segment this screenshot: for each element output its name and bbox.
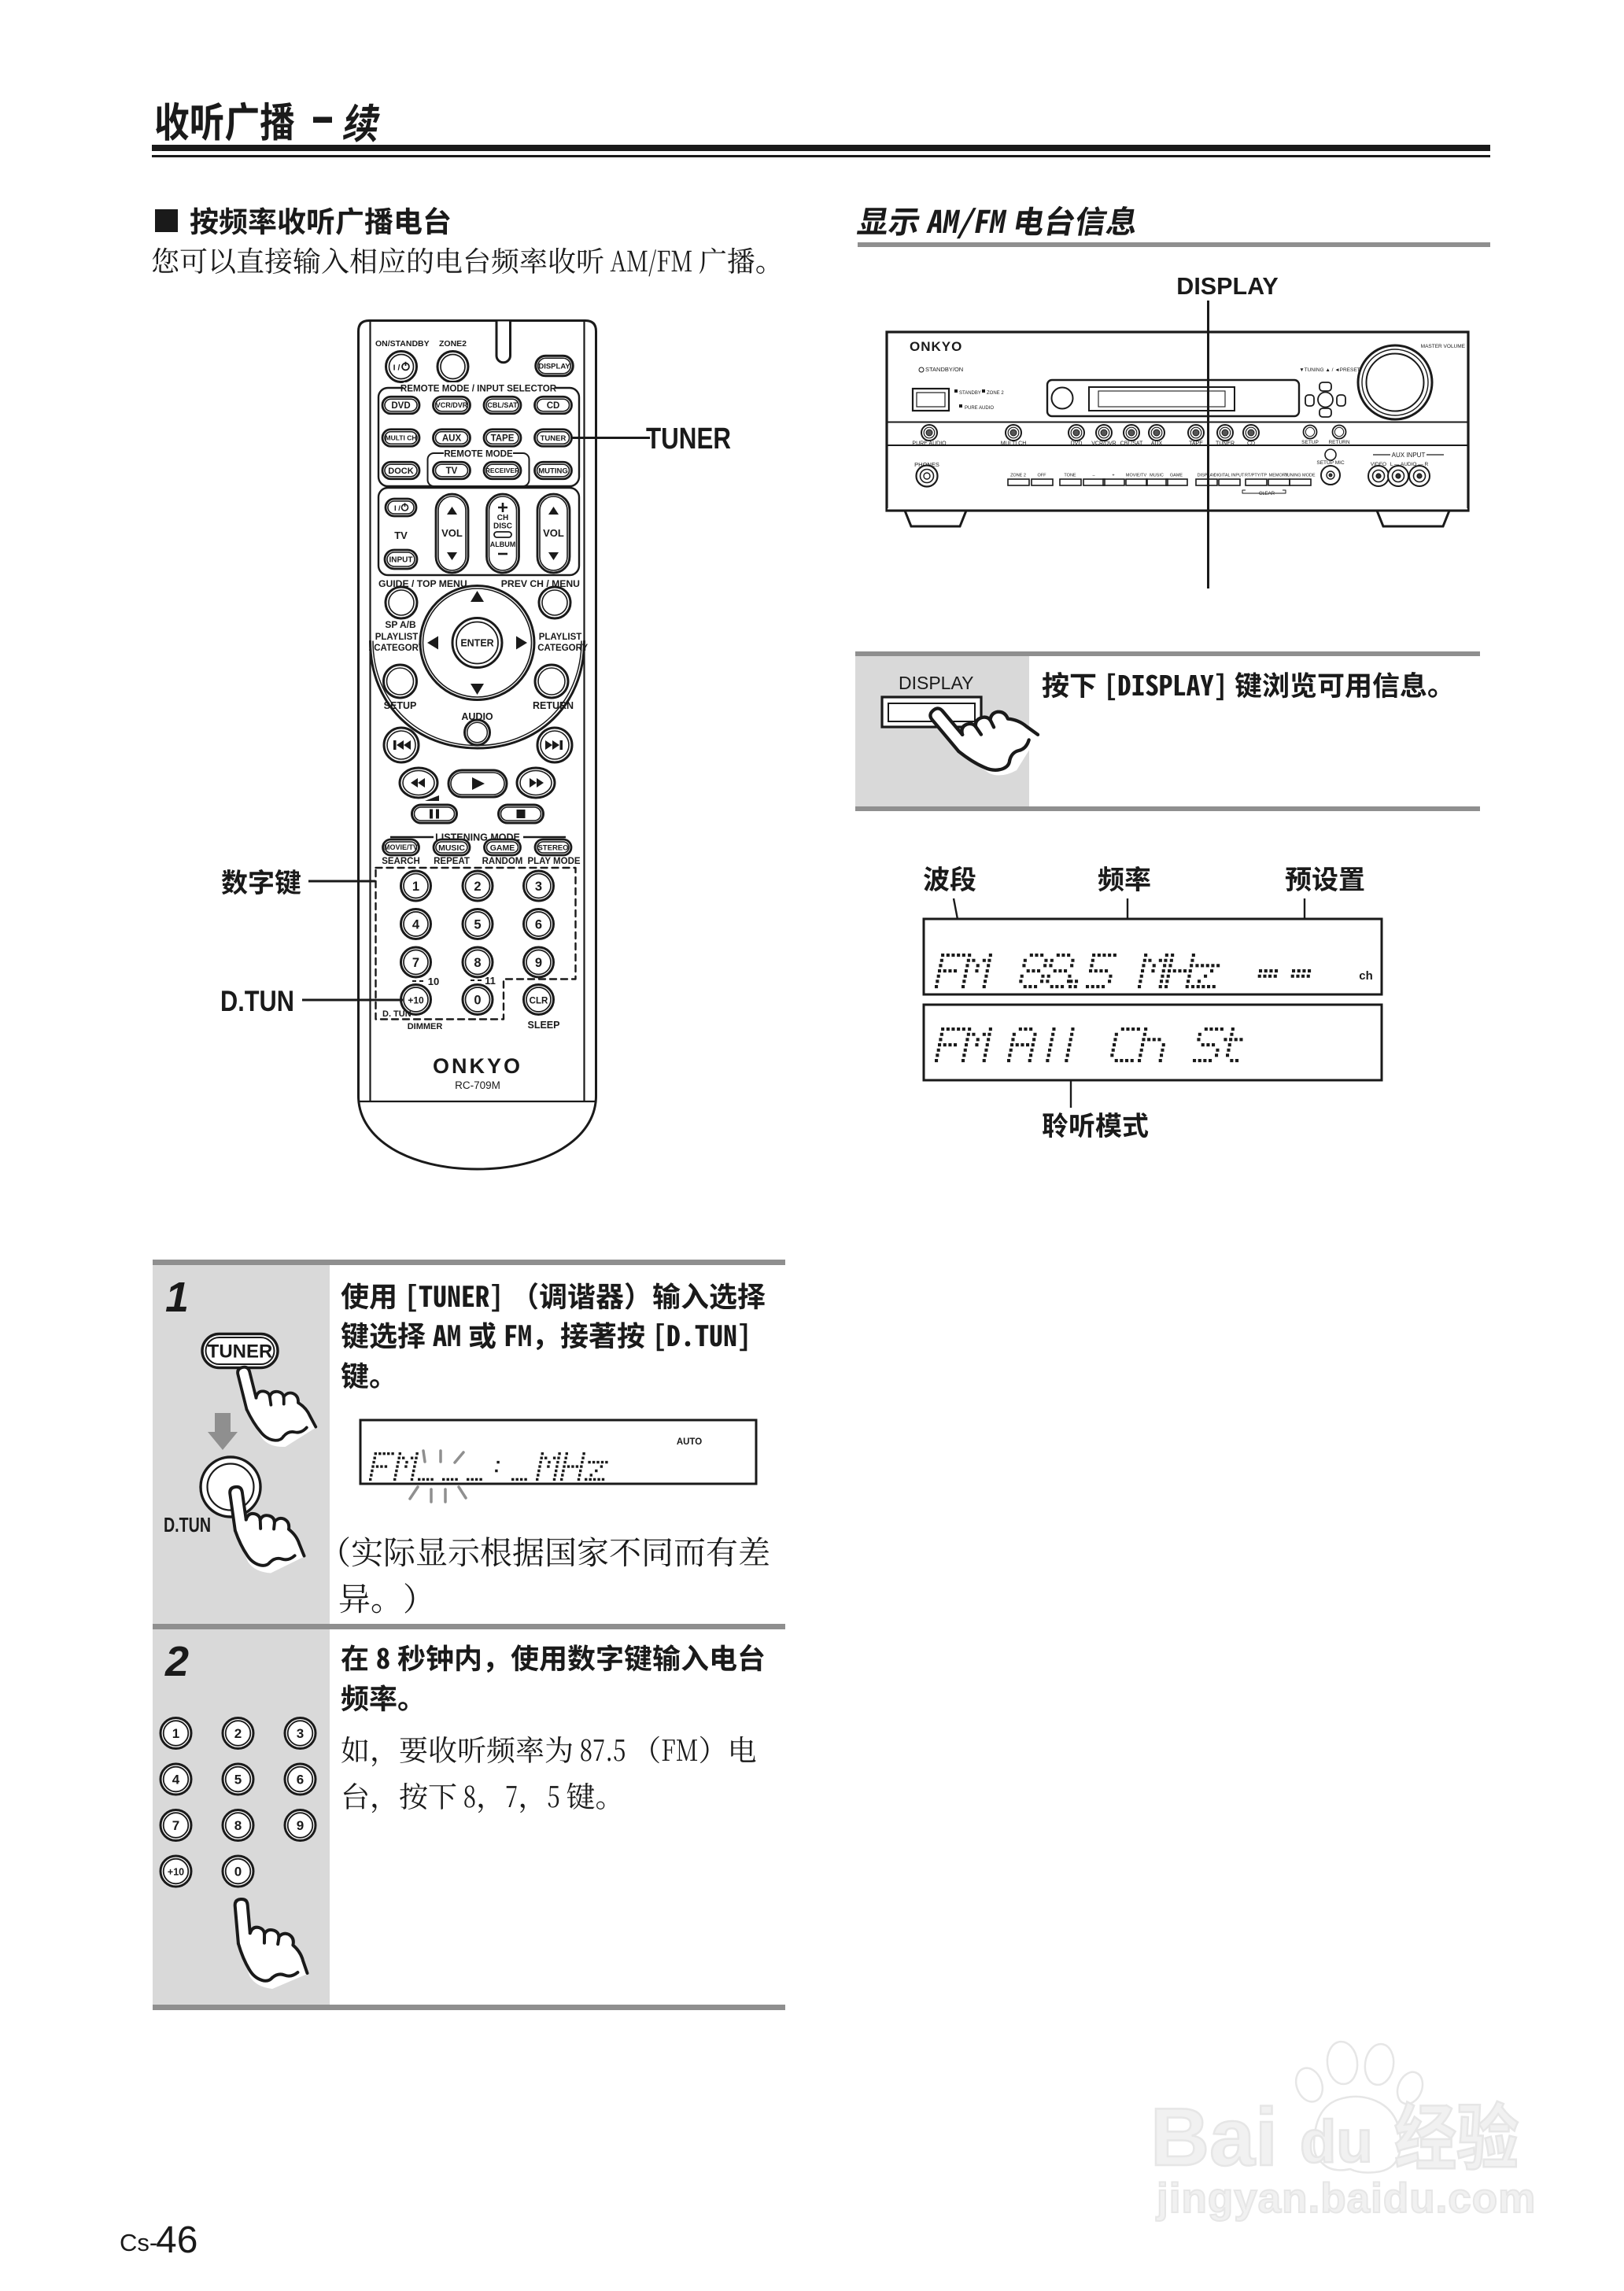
svg-text:DOCK: DOCK	[388, 467, 413, 476]
svg-text:Cs-: Cs-	[120, 2229, 157, 2256]
svg-text:SETUP: SETUP	[1301, 440, 1319, 445]
svg-text:SLEEP: SLEEP	[528, 1020, 560, 1031]
svg-text:AUX: AUX	[442, 434, 462, 444]
svg-text:46: 46	[156, 2219, 197, 2261]
svg-text:du: du	[1300, 2108, 1373, 2175]
svg-text:TUNER: TUNER	[1216, 441, 1235, 447]
svg-text:TUNER: TUNER	[541, 434, 567, 443]
svg-text:1: 1	[412, 880, 419, 894]
svg-text:SETUP MIC: SETUP MIC	[1316, 460, 1345, 466]
svg-text:2: 2	[474, 880, 481, 894]
svg-text:6: 6	[535, 918, 542, 932]
svg-text:TAPE: TAPE	[491, 434, 515, 444]
svg-text:DISC: DISC	[493, 522, 512, 531]
svg-text:VCR/DVR: VCR/DVR	[436, 401, 468, 409]
svg-text:▼TUNING ▲ / ◄PRESET ►: ▼TUNING ▲ / ◄PRESET ►	[1299, 367, 1367, 373]
svg-text:DISPLAY: DISPLAY	[1198, 474, 1216, 478]
svg-text:REPEAT: REPEAT	[434, 857, 470, 866]
svg-text:8: 8	[474, 956, 481, 970]
svg-text:PLAYLIST: PLAYLIST	[375, 633, 419, 642]
svg-text:SP A/B: SP A/B	[385, 619, 416, 630]
svg-text:REMOTE MODE / INPUT SELECTOR: REMOTE MODE / INPUT SELECTOR	[400, 384, 557, 394]
svg-text:MULTI CH: MULTI CH	[1001, 441, 1027, 447]
svg-text:1: 1	[172, 1726, 179, 1741]
svg-text:0: 0	[474, 994, 481, 1008]
svg-text:PLAY MODE: PLAY MODE	[527, 857, 580, 866]
svg-text:GAME: GAME	[490, 843, 515, 853]
svg-text:+10: +10	[168, 1867, 184, 1878]
svg-text:DVD: DVD	[1071, 441, 1083, 447]
svg-text:+: +	[1112, 474, 1114, 478]
svg-text:CD: CD	[547, 401, 560, 411]
svg-text:DVD: DVD	[391, 401, 410, 411]
svg-text:MASTER VOLUME: MASTER VOLUME	[1421, 344, 1466, 349]
svg-text:VOL: VOL	[441, 527, 463, 539]
svg-text:ZONE2: ZONE2	[439, 339, 467, 349]
svg-text:TONE: TONE	[1064, 474, 1076, 478]
svg-text:STANDBY: STANDBY	[959, 391, 981, 396]
svg-text:8: 8	[234, 1818, 242, 1833]
svg-text:I /: I /	[393, 363, 400, 373]
svg-text:AUX: AUX	[1151, 441, 1163, 447]
svg-text:7: 7	[412, 956, 419, 970]
svg-text:INPUT: INPUT	[389, 556, 413, 565]
svg-text:STANDBY/ON: STANDBY/ON	[925, 366, 963, 373]
svg-text:TAPE: TAPE	[1189, 441, 1203, 447]
svg-text:TUNING MODE: TUNING MODE	[1284, 474, 1315, 478]
svg-text:MULTI CH: MULTI CH	[386, 434, 417, 442]
svg-text:0: 0	[234, 1865, 242, 1880]
svg-text:ZONE 2: ZONE 2	[1010, 474, 1026, 478]
svg-text:VOL: VOL	[543, 527, 564, 539]
svg-text:CLEAR: CLEAR	[1259, 492, 1275, 496]
svg-text:Bai: Bai	[1150, 2092, 1278, 2183]
svg-text:CH: CH	[497, 514, 508, 522]
svg-text:2: 2	[234, 1726, 242, 1741]
svg-text:MUSIC: MUSIC	[1150, 474, 1164, 478]
svg-text:RT/PTY/TP: RT/PTY/TP	[1245, 474, 1267, 478]
svg-text:ONKYO: ONKYO	[433, 1054, 522, 1078]
svg-text:ch: ch	[1359, 969, 1373, 983]
svg-text:TV: TV	[446, 467, 458, 476]
svg-text:MOVIE/TV: MOVIE/TV	[384, 843, 418, 851]
svg-text:CBL/SAT: CBL/SAT	[1120, 441, 1143, 447]
svg-text:D.TUN: D.TUN	[164, 1513, 211, 1537]
svg-text:GAME: GAME	[1170, 474, 1183, 478]
svg-text:CBL/SAT: CBL/SAT	[487, 401, 518, 409]
svg-text:DIMMER: DIMMER	[408, 1022, 443, 1031]
svg-text:DISPLAY: DISPLAY	[538, 363, 570, 371]
svg-text:jingyan.baidu.com: jingyan.baidu.com	[1156, 2175, 1536, 2222]
svg-text:DISPLAY: DISPLAY	[1176, 273, 1278, 300]
svg-text:CLR: CLR	[530, 997, 548, 1006]
svg-text:PREV CH / MENU: PREV CH / MENU	[501, 578, 580, 589]
svg-text:RANDOM: RANDOM	[482, 857, 523, 866]
svg-text:4: 4	[172, 1773, 180, 1787]
svg-text:6: 6	[297, 1773, 304, 1787]
svg-text:9: 9	[297, 1818, 304, 1833]
svg-text:5: 5	[474, 918, 481, 932]
svg-text:ALBUM: ALBUM	[490, 540, 516, 548]
svg-text:MUSIC: MUSIC	[438, 843, 465, 853]
svg-text:SEARCH: SEARCH	[382, 857, 420, 866]
svg-text:CD: CD	[1247, 441, 1255, 447]
svg-text:10: 10	[428, 976, 439, 987]
svg-text:PURE AUDIO: PURE AUDIO	[912, 441, 947, 447]
svg-text:GUIDE / TOP MENU: GUIDE / TOP MENU	[378, 578, 467, 589]
svg-text:RC-709M: RC-709M	[455, 1079, 500, 1091]
svg-text:D.TUN: D.TUN	[220, 985, 294, 1017]
svg-text:2: 2	[164, 1638, 189, 1685]
svg-text:5: 5	[234, 1773, 242, 1787]
svg-text:STEREO: STEREO	[537, 843, 568, 852]
svg-text:/ CATEGORY: / CATEGORY	[533, 644, 589, 653]
svg-text:MUTING: MUTING	[538, 467, 567, 475]
svg-text:AUX INPUT: AUX INPUT	[1392, 452, 1426, 459]
svg-text:4: 4	[412, 918, 420, 932]
svg-text:AUTO: AUTO	[677, 1437, 702, 1447]
svg-text:ON/STANDBY: ON/STANDBY	[375, 339, 430, 349]
svg-text:ONKYO: ONKYO	[910, 339, 962, 354]
svg-text:+10: +10	[408, 995, 424, 1006]
svg-text:DISPLAY: DISPLAY	[899, 673, 973, 693]
svg-text:3: 3	[297, 1726, 304, 1741]
svg-text:REMOTE MODE: REMOTE MODE	[444, 449, 513, 459]
svg-text:3: 3	[535, 880, 542, 894]
svg-text:ENTER: ENTER	[460, 638, 493, 649]
svg-text:PURE AUDIO: PURE AUDIO	[965, 406, 994, 411]
svg-text:VCR/DVR: VCR/DVR	[1091, 441, 1116, 447]
svg-text:1: 1	[165, 1274, 189, 1321]
svg-text:PLAYLIST: PLAYLIST	[539, 633, 582, 642]
svg-text:11: 11	[485, 975, 496, 987]
svg-text:D. TUN: D. TUN	[382, 1009, 412, 1019]
svg-text:ZONE 2: ZONE 2	[987, 391, 1004, 396]
svg-text:OFF: OFF	[1038, 474, 1047, 478]
svg-text:TUNER: TUNER	[646, 422, 731, 456]
svg-text:9: 9	[535, 956, 542, 970]
svg-text:RECEIVER: RECEIVER	[485, 467, 519, 474]
svg-text:I /: I /	[394, 504, 400, 513]
svg-text:TV: TV	[394, 529, 408, 541]
svg-text:7: 7	[172, 1818, 179, 1833]
svg-text:/ CATEGORY: / CATEGORY	[369, 644, 425, 653]
svg-text:DIGITAL INPUT: DIGITAL INPUT	[1214, 474, 1245, 478]
svg-text:TUNER: TUNER	[208, 1341, 273, 1363]
svg-text:RETURN: RETURN	[1328, 440, 1349, 445]
svg-text:MOVIE/TV: MOVIE/TV	[1126, 474, 1147, 478]
